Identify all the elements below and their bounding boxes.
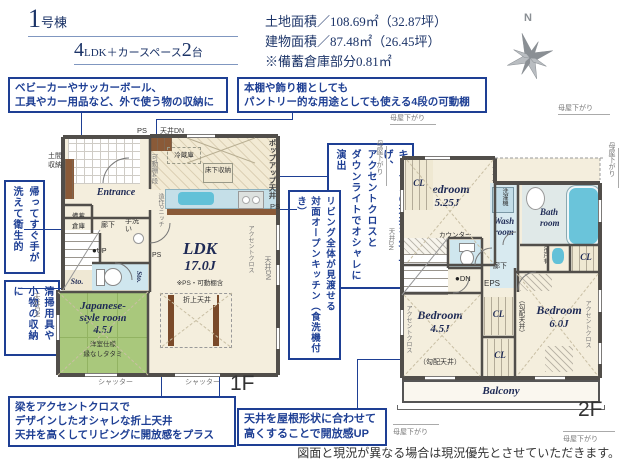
- ps-top-label: PS: [137, 126, 147, 135]
- storage-note: ※備蓄倉庫部分0.81㎡: [265, 52, 447, 72]
- disclaimer: 図面と現況が異なる場合は現況優先とさせていただきます。: [297, 444, 620, 461]
- building-number: 1: [28, 4, 41, 33]
- connector-slope-1: [357, 360, 358, 408]
- annotation-beam-ceiling: 梁をアクセントクロスで デザインしたオシャレな折上天井 天井を高くしてリビングに…: [8, 396, 236, 447]
- plan-mid: LDK＋カースペース: [84, 47, 182, 59]
- compass: N: [498, 6, 562, 98]
- connector-shelf-2: [156, 119, 293, 120]
- moya-label-topright: 母屋下がり: [558, 103, 593, 113]
- annotation-handwash: 帰ってすぐ手が 洗えて衛生的: [4, 180, 45, 274]
- plan-suffix: 台: [192, 47, 203, 59]
- annotation-open-kitchen: リビング全体が見渡せる 対面オープンキッチン（食洗機付き）: [288, 190, 341, 360]
- ceiling-dn-right-label: 天井DN: [262, 256, 272, 280]
- shutter-label-1: シャッター: [98, 377, 133, 387]
- moya-label-botleft: 母屋下がり: [393, 427, 428, 437]
- moya-dim-5: [393, 424, 439, 425]
- popup-ceiling-label: ポップアップ天井: [267, 139, 278, 201]
- building-title: 1号棟: [28, 4, 67, 34]
- building-area: 建物面積／87.48㎡（26.45坪）: [265, 32, 447, 52]
- title-underline-2: [74, 64, 238, 65]
- moya-dim-6: [563, 431, 615, 432]
- compass-rose-icon: [498, 6, 562, 98]
- moya-dim-2: [558, 114, 610, 115]
- moya-label-right: 母屋下がり: [606, 142, 616, 177]
- moya-label-left: 母屋下がり: [374, 140, 384, 175]
- annotation-cleaning-storage: 清掃用具や 小物の収納に: [4, 280, 60, 356]
- floor1-plan: 可動棚4段 冷蔵庫 床下収納 造作Pニッチ Entrance 備蓄 倉庫 廊下 …: [55, 125, 280, 378]
- plan-rooms: 4: [74, 39, 84, 61]
- title-underline-1: [28, 36, 238, 37]
- area-info: 土地面積／108.69㎡（32.87坪） 建物面積／87.48㎡（26.45坪）…: [265, 12, 447, 72]
- shutter-label-2: シャッター: [185, 377, 220, 387]
- ceiling-dn-2f-label: 天井DN: [385, 228, 395, 250]
- layout-title: 4LDK＋カースペース2台: [74, 39, 203, 62]
- ps-right-label: PS: [270, 202, 280, 211]
- moya-dim-4: [618, 148, 619, 188]
- moya-dim-1: [390, 124, 436, 125]
- plan-cars: 2: [182, 39, 192, 61]
- floor1-label: 1F: [230, 372, 255, 396]
- ceiling-dn-top-label: 天井DN: [160, 126, 184, 136]
- ceiling-dn-left-label: 天井DN: [31, 293, 41, 317]
- floor1-walls: [55, 125, 280, 378]
- annotation-outdoor-storage: ベビーカーやサッカーボール、 工具やカー用品など、外で使う物の収納に: [8, 77, 228, 113]
- moya-dim-3: [386, 146, 387, 186]
- land-area: 土地面積／108.69㎡（32.87坪）: [265, 12, 447, 32]
- floor2-walls: [395, 150, 615, 413]
- floor2-plan: Bedroom 5.25J CL アクセントクロス 洗濯機 Wash room …: [395, 150, 615, 413]
- doma-label: 土間 収納: [48, 152, 64, 170]
- annotation-sloped-ceiling: 天井を屋根形状に合わせて 高くすることで開放感UP: [237, 408, 387, 446]
- floorplan-flyer: 1号棟 4LDK＋カースペース2台 土地面積／108.69㎡（32.87坪） 建…: [0, 0, 624, 466]
- moya-label-topleft: 母屋下がり: [390, 113, 425, 123]
- moya-label-botright: 母屋下がり: [563, 434, 598, 444]
- annotation-movable-shelf: 本棚や飾り棚としても パントリー的な用途としても使える4段の可動棚: [237, 77, 487, 113]
- floor2-label: 2F: [578, 398, 603, 422]
- building-suffix: 号棟: [41, 15, 67, 30]
